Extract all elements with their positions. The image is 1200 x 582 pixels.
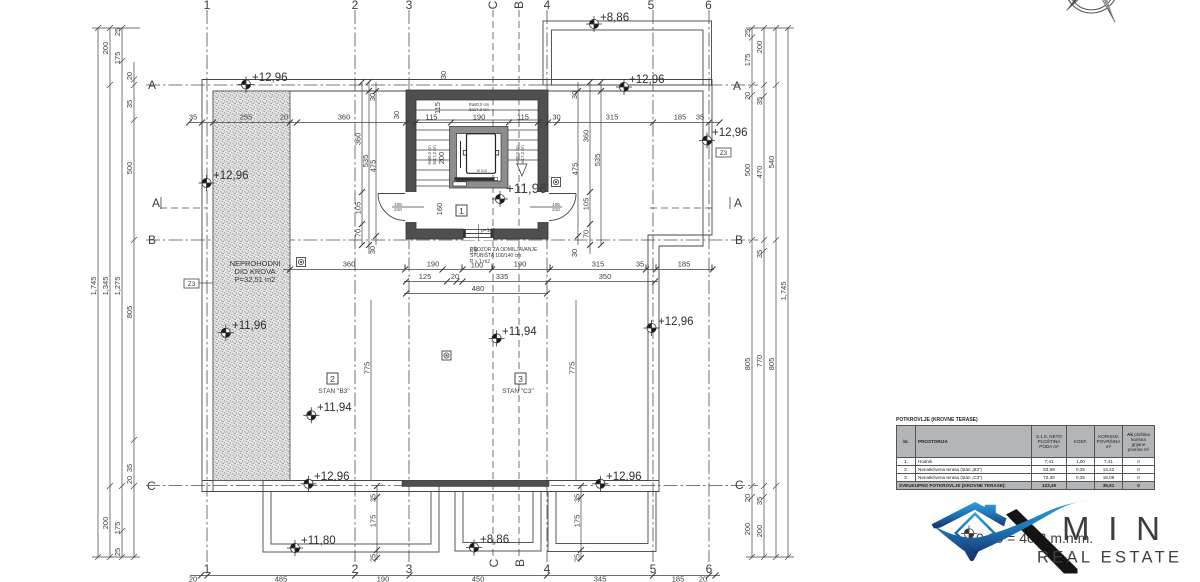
svg-text:1,745: 1,745 <box>89 277 98 296</box>
svg-text:+8,86: +8,86 <box>600 12 629 24</box>
svg-text:20: 20 <box>125 72 134 80</box>
svg-text:20: 20 <box>451 272 459 281</box>
svg-text:+11,94: +11,94 <box>502 326 537 338</box>
svg-text:+12,96: +12,96 <box>252 72 288 84</box>
svg-text:5: 5 <box>648 0 655 12</box>
svg-text:35: 35 <box>636 260 644 269</box>
svg-text:B: B <box>735 233 743 247</box>
svg-text:175: 175 <box>369 515 378 528</box>
svg-text:360: 360 <box>338 113 351 122</box>
svg-text:805: 805 <box>125 306 134 319</box>
svg-text:480: 480 <box>472 284 485 293</box>
svg-text:175: 175 <box>573 515 582 528</box>
svg-text:185: 185 <box>678 260 691 269</box>
svg-text:STUBIŠTA 100/140 cm: STUBIŠTA 100/140 cm <box>470 252 521 259</box>
svg-text:25: 25 <box>113 548 122 556</box>
svg-text:200: 200 <box>101 517 110 530</box>
svg-text:200: 200 <box>437 152 446 165</box>
svg-text:185: 185 <box>674 113 687 122</box>
svg-text:6a17,2 cm: 6a17,2 cm <box>469 107 489 112</box>
svg-text:335: 335 <box>496 272 509 281</box>
svg-text:200: 200 <box>101 42 110 55</box>
svg-text:+11,96: +11,96 <box>232 320 267 332</box>
svg-text:2: 2 <box>330 374 335 384</box>
svg-text:190: 190 <box>473 113 486 122</box>
svg-text:20: 20 <box>189 575 197 582</box>
svg-text:Z3: Z3 <box>188 281 196 288</box>
svg-text:+12,96: +12,96 <box>629 74 665 86</box>
svg-text:115: 115 <box>433 102 442 114</box>
svg-text:A: A <box>733 79 741 93</box>
svg-text:B: B <box>148 233 156 247</box>
svg-text:B: B <box>512 1 526 9</box>
svg-text:3: 3 <box>406 0 413 12</box>
svg-text:P=32,51 m2: P=32,51 m2 <box>235 275 276 284</box>
svg-text:B: B <box>513 559 527 567</box>
svg-text:2: 2 <box>352 0 359 12</box>
svg-text:360: 360 <box>354 133 363 146</box>
svg-text:200: 200 <box>743 523 752 536</box>
svg-text:A: A <box>152 196 160 210</box>
svg-text:500: 500 <box>125 162 134 175</box>
svg-text:125: 125 <box>419 272 432 281</box>
svg-text:A: A <box>734 196 742 210</box>
svg-text:25: 25 <box>113 28 122 36</box>
svg-text:9x17,2 cm: 9x17,2 cm <box>432 145 437 165</box>
svg-text:775: 775 <box>363 362 372 375</box>
svg-text:35: 35 <box>696 113 704 122</box>
svg-text:200: 200 <box>755 41 764 54</box>
svg-text:6: 6 <box>705 0 712 12</box>
svg-text:+12,96: +12,96 <box>314 471 350 483</box>
svg-text:+12,96: +12,96 <box>712 127 748 139</box>
svg-text:Ø 010: Ø 010 <box>477 169 487 173</box>
svg-text:315: 315 <box>606 113 619 122</box>
svg-text:535: 535 <box>593 154 602 167</box>
svg-text:35: 35 <box>755 250 764 258</box>
svg-text:+11,94: +11,94 <box>317 402 352 414</box>
svg-text:475: 475 <box>571 163 580 176</box>
svg-text:35: 35 <box>755 97 764 105</box>
svg-text:190: 190 <box>514 260 527 269</box>
svg-text:775: 775 <box>568 362 577 375</box>
svg-text:35: 35 <box>573 494 582 502</box>
svg-text:450: 450 <box>472 575 485 582</box>
svg-text:190: 190 <box>377 575 390 582</box>
svg-text:35: 35 <box>125 464 134 472</box>
svg-text:210: 210 <box>394 207 402 212</box>
svg-text:+11,80: +11,80 <box>301 535 336 547</box>
svg-text:30: 30 <box>570 91 579 99</box>
svg-text:25: 25 <box>369 554 378 562</box>
svg-text:100: 100 <box>471 261 484 270</box>
svg-text:540: 540 <box>767 156 776 169</box>
svg-text:STAN "B3": STAN "B3" <box>318 388 350 395</box>
svg-text:30: 30 <box>368 93 377 101</box>
svg-text:360: 360 <box>343 260 356 269</box>
svg-text:20: 20 <box>743 494 752 502</box>
svg-text:770: 770 <box>755 355 764 368</box>
svg-text:C: C <box>147 479 156 493</box>
svg-text:20: 20 <box>743 92 752 100</box>
svg-text:175: 175 <box>743 54 752 67</box>
svg-text:485: 485 <box>275 575 288 582</box>
svg-text:C: C <box>735 478 744 492</box>
svg-text:35: 35 <box>189 113 197 122</box>
svg-text:30: 30 <box>392 111 401 119</box>
svg-text:2: 2 <box>352 562 359 576</box>
svg-text:30: 30 <box>570 249 579 257</box>
svg-text:70: 70 <box>354 229 363 237</box>
svg-text:STAN "C3": STAN "C3" <box>502 388 534 395</box>
svg-text:115: 115 <box>517 113 529 122</box>
svg-text:A: A <box>148 78 156 92</box>
svg-text:255: 255 <box>240 113 253 122</box>
svg-text:C: C <box>487 558 501 567</box>
svg-text:4: 4 <box>544 562 551 576</box>
svg-text:345: 345 <box>594 575 607 582</box>
svg-text:200: 200 <box>755 525 764 538</box>
svg-text:105: 105 <box>582 198 591 211</box>
svg-text:+11,96: +11,96 <box>506 181 547 196</box>
svg-text:5: 5 <box>650 562 657 576</box>
svg-text:350: 350 <box>599 272 612 281</box>
svg-text:805: 805 <box>743 358 752 371</box>
svg-text:p=145: p=145 <box>481 228 495 234</box>
svg-text:20: 20 <box>125 476 134 484</box>
svg-text:175: 175 <box>113 522 122 535</box>
svg-text:805: 805 <box>767 358 776 371</box>
svg-text:315: 315 <box>592 260 605 269</box>
svg-text:20: 20 <box>280 113 288 122</box>
svg-text:160: 160 <box>435 203 444 216</box>
svg-text:25: 25 <box>573 554 582 562</box>
svg-text:25: 25 <box>743 29 752 37</box>
svg-text:190: 190 <box>427 260 440 269</box>
svg-text:20: 20 <box>699 575 707 582</box>
svg-text:4: 4 <box>544 0 551 12</box>
svg-text:35: 35 <box>369 494 378 502</box>
svg-text:500: 500 <box>743 164 752 177</box>
svg-text:+12,96: +12,96 <box>213 170 249 182</box>
svg-text:5x17,2 cm: 5x17,2 cm <box>520 145 525 165</box>
svg-text:35: 35 <box>755 497 764 505</box>
svg-text:105: 105 <box>354 202 363 215</box>
svg-text:360: 360 <box>582 130 591 143</box>
svg-text:+12,96: +12,96 <box>658 316 694 328</box>
svg-text:Z3: Z3 <box>720 150 728 157</box>
svg-text:C: C <box>486 0 500 9</box>
svg-text:1,345: 1,345 <box>101 277 110 296</box>
svg-text:210: 210 <box>552 207 560 212</box>
svg-text:1,745: 1,745 <box>779 282 788 301</box>
svg-text:1: 1 <box>204 0 211 12</box>
svg-text:MIN: MIN <box>1062 510 1160 547</box>
svg-text:REAL ESTATE: REAL ESTATE <box>1037 549 1179 567</box>
svg-text:470: 470 <box>755 166 764 179</box>
svg-text:175: 175 <box>113 52 122 65</box>
svg-text:70: 70 <box>582 230 591 238</box>
svg-text:35: 35 <box>125 100 134 108</box>
svg-text:475: 475 <box>369 160 378 173</box>
svg-text:30: 30 <box>368 246 377 254</box>
svg-text:1: 1 <box>459 206 464 216</box>
svg-text:185: 185 <box>672 575 685 582</box>
svg-text:30: 30 <box>439 71 448 79</box>
svg-text:3: 3 <box>518 374 523 384</box>
svg-text:1,275: 1,275 <box>113 277 122 296</box>
svg-text:+12,96: +12,96 <box>606 471 642 483</box>
svg-text:30: 30 <box>552 113 560 122</box>
svg-text:+8,86: +8,86 <box>480 534 509 546</box>
